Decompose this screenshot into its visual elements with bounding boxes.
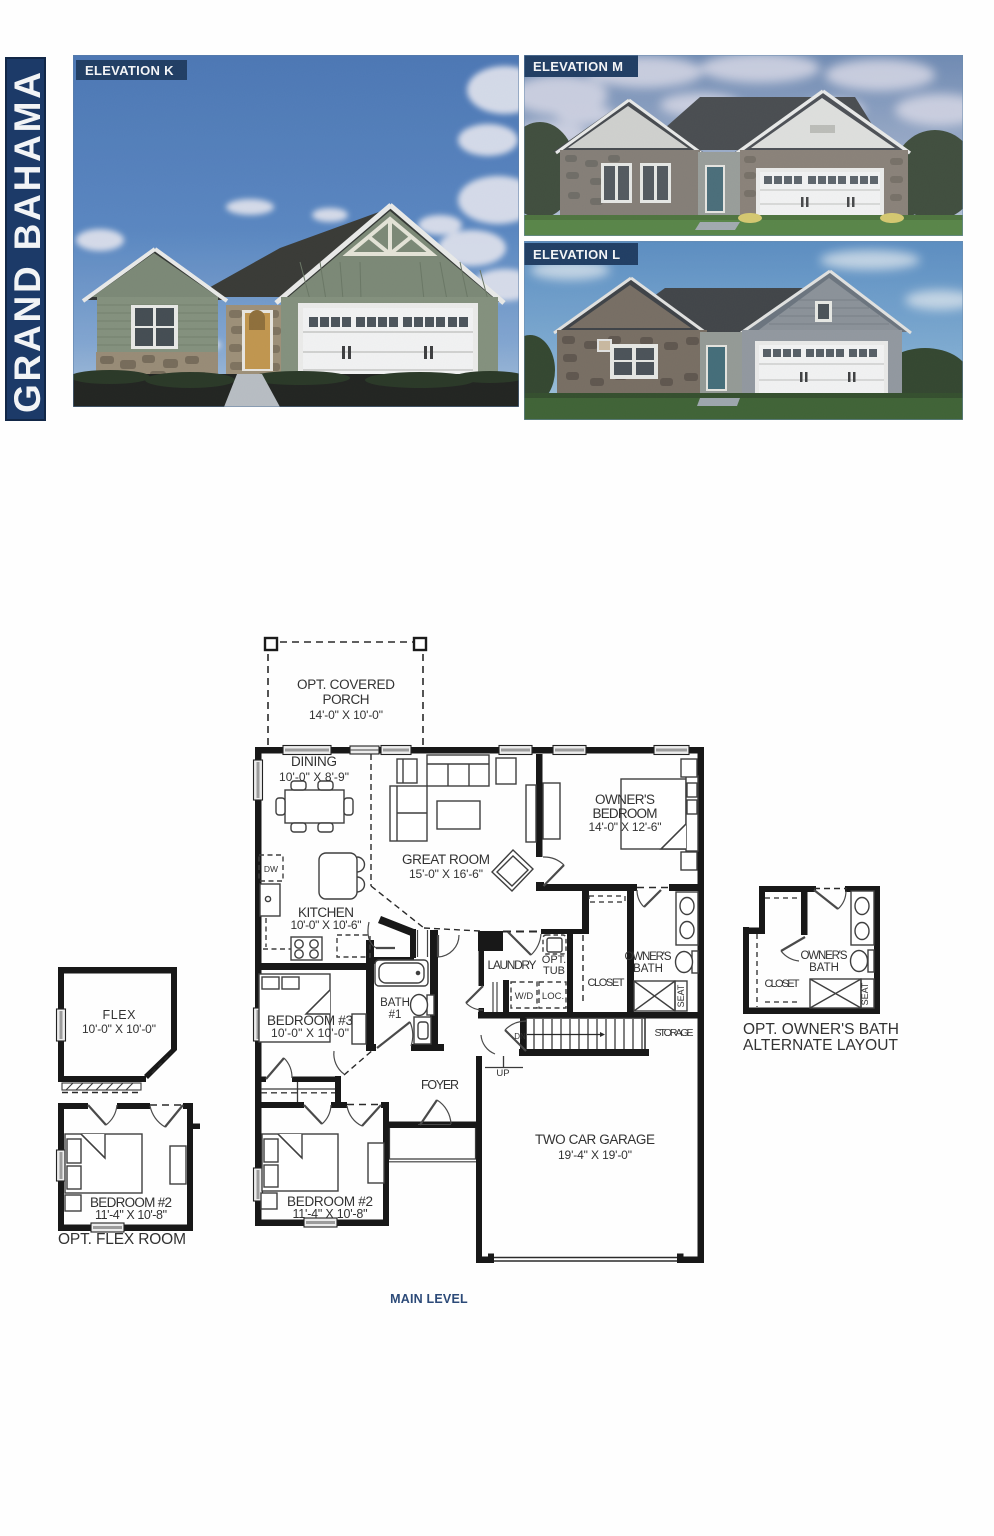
svg-text:W/D: W/D (515, 991, 534, 1002)
svg-text:BATH: BATH (633, 963, 663, 975)
svg-text:OPT. FLEX ROOM: OPT. FLEX ROOM (58, 1231, 186, 1248)
svg-text:MAIN LEVEL: MAIN LEVEL (390, 1292, 468, 1306)
svg-text:19'-4" X 19'-0": 19'-4" X 19'-0" (558, 1148, 632, 1162)
svg-text:OWNER'S: OWNER'S (625, 951, 672, 963)
svg-text:GREAT ROOM: GREAT ROOM (402, 852, 490, 867)
svg-text:FOYER: FOYER (421, 1078, 459, 1092)
svg-text:OPT. OWNER'S BATH: OPT. OWNER'S BATH (743, 1021, 899, 1038)
svg-text:11'-4" X 10'-8": 11'-4" X 10'-8" (293, 1207, 368, 1221)
svg-text:FLEX: FLEX (103, 1008, 137, 1022)
svg-text:DINING: DINING (291, 754, 337, 769)
svg-text:14'-0" X 12'-6": 14'-0" X 12'-6" (589, 820, 662, 834)
svg-text:#1: #1 (389, 1009, 402, 1021)
svg-text:14'-0" X 10'-0": 14'-0" X 10'-0" (309, 708, 383, 722)
svg-text:SEAT: SEAT (860, 982, 870, 1005)
svg-text:OPT. COVERED: OPT. COVERED (297, 677, 395, 692)
svg-text:OWNER'S: OWNER'S (595, 792, 655, 807)
svg-text:GRAND BAHAMA: GRAND BAHAMA (7, 71, 48, 413)
svg-text:STORAGE: STORAGE (655, 1027, 694, 1039)
svg-text:ALTERNATE LAYOUT: ALTERNATE LAYOUT (743, 1037, 899, 1054)
svg-text:CLOSET: CLOSET (765, 978, 800, 990)
svg-text:10'-0" X 10'-6": 10'-0" X 10'-6" (291, 918, 362, 932)
svg-text:TWO CAR GARAGE: TWO CAR GARAGE (535, 1132, 655, 1147)
svg-text:LAUNDRY: LAUNDRY (488, 958, 537, 972)
svg-text:10'-0" X 10'-0": 10'-0" X 10'-0" (82, 1022, 156, 1036)
svg-text:BEDROOM: BEDROOM (593, 806, 658, 821)
svg-text:BATH: BATH (809, 962, 839, 974)
svg-text:OWNER'S: OWNER'S (801, 950, 848, 962)
svg-text:15'-0" X 16'-6": 15'-0" X 16'-6" (409, 867, 483, 881)
svg-text:DW: DW (264, 864, 278, 874)
svg-text:LOC.: LOC. (542, 991, 564, 1002)
svg-text:UP: UP (496, 1068, 509, 1079)
svg-text:TUB: TUB (543, 965, 565, 977)
svg-text:PORCH: PORCH (323, 692, 370, 707)
svg-text:SEAT: SEAT (676, 984, 686, 1007)
svg-text:10'-0" X 8'-9": 10'-0" X 8'-9" (279, 770, 349, 784)
svg-text:CLOSET: CLOSET (588, 977, 625, 989)
svg-text:BATH: BATH (380, 997, 410, 1009)
svg-text:11'-4" X 10'-8": 11'-4" X 10'-8" (95, 1208, 167, 1222)
svg-text:10'-0" X 10'-0": 10'-0" X 10'-0" (271, 1026, 349, 1040)
svg-text:DN: DN (514, 1032, 526, 1041)
